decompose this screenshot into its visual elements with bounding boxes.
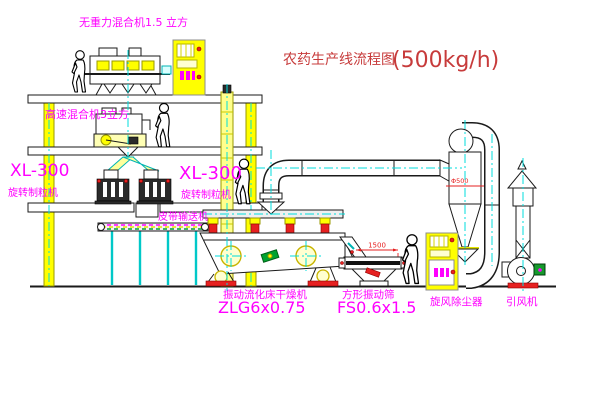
cyclone-dimension: Φ500: [451, 177, 469, 185]
label-cyclone: 旋风除尘器: [430, 295, 483, 308]
label-high-speed-mixer: 高速混合机3立方: [45, 107, 129, 121]
belt-conveyor: [98, 223, 209, 285]
label-sieve-model: FS0.6x1.5: [337, 298, 416, 317]
label-granulator-right-model: XL-300: [179, 163, 242, 184]
label-granulator-left-model: XL-300: [10, 161, 69, 181]
label-belt-conveyor: 皮带输送机: [158, 210, 208, 223]
person-figure: [72, 51, 86, 92]
label-granulator-right-name: 旋转制粒机: [181, 188, 231, 201]
vibrating-sieve: 1500 350: [339, 237, 408, 286]
cad-flow-diagram: Φ500 1500 350: [0, 0, 600, 403]
label-gravity-mixer: 无重力混合机1.5 立方: [79, 15, 188, 29]
sieve-length-dimension: 1500: [368, 242, 386, 250]
gravity-free-mixer: [82, 48, 171, 95]
label-fan: 引风机: [506, 295, 538, 308]
exhaust-stack: [508, 161, 536, 258]
person-figure: [156, 103, 170, 146]
diagram-title-capacity: (500kg/h): [392, 48, 499, 73]
granulator-left: [95, 170, 131, 204]
label-granulator-left-name: 旋转制粒机: [8, 186, 58, 199]
diagram-svg: Φ500 1500 350: [0, 0, 600, 403]
control-cabinet-top: [173, 40, 205, 95]
label-dryer-model: ZLG6x0.75: [218, 298, 306, 317]
person-figure: [403, 235, 419, 284]
granulator-right: [137, 170, 173, 204]
y-chute: [107, 157, 159, 171]
diagram-title: 农药生产线流程图: [283, 52, 395, 68]
control-cabinet-right: [426, 233, 458, 290]
